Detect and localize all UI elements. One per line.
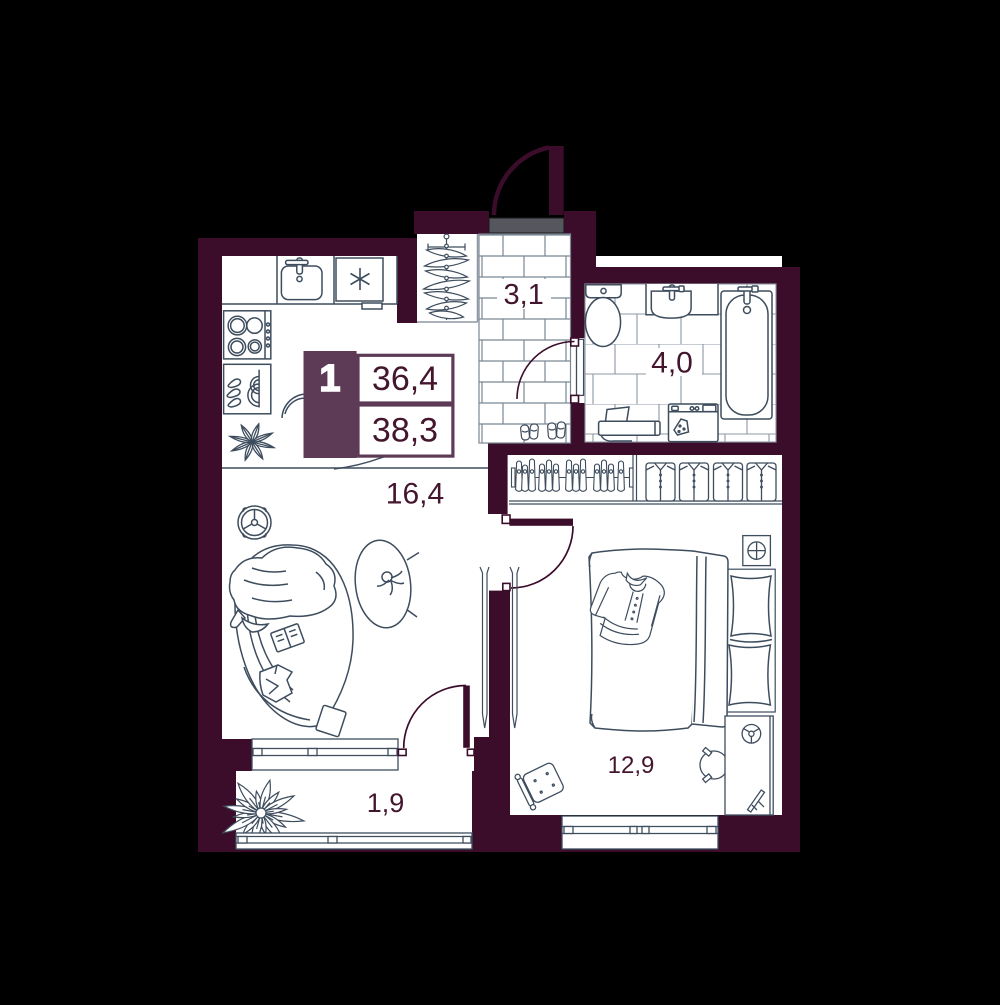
svg-text:36,4: 36,4 — [372, 360, 438, 398]
svg-text:1,9: 1,9 — [367, 788, 405, 818]
svg-text:3,1: 3,1 — [504, 279, 544, 311]
svg-text:1: 1 — [319, 358, 340, 400]
svg-text:38,3: 38,3 — [372, 412, 438, 450]
svg-text:4,0: 4,0 — [651, 347, 693, 380]
svg-text:16,4: 16,4 — [386, 478, 444, 511]
svg-text:12,9: 12,9 — [608, 752, 655, 779]
